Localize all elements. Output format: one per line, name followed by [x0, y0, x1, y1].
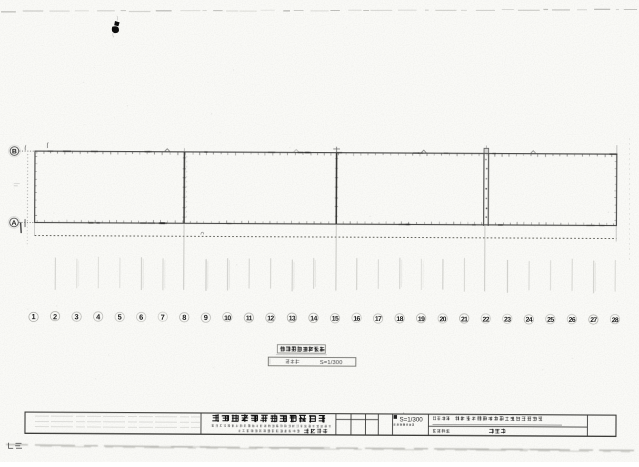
svg-text:14: 14 — [310, 316, 317, 323]
svg-text:2: 2 — [53, 312, 57, 321]
svg-text:8: 8 — [182, 313, 186, 322]
svg-text:23: 23 — [504, 317, 511, 324]
svg-text:11: 11 — [246, 315, 253, 322]
svg-text:3: 3 — [75, 312, 79, 321]
svg-text:13: 13 — [289, 315, 296, 322]
svg-text:22: 22 — [483, 316, 490, 323]
svg-text:15: 15 — [332, 316, 339, 323]
svg-text:5: 5 — [118, 313, 122, 322]
svg-text:9: 9 — [204, 313, 208, 322]
svg-text:20: 20 — [439, 316, 446, 323]
svg-text:6: 6 — [139, 313, 143, 322]
svg-text:B: B — [12, 148, 17, 155]
svg-text:28: 28 — [612, 317, 619, 324]
svg-text:27: 27 — [590, 317, 597, 324]
svg-text:25: 25 — [547, 317, 554, 324]
svg-text:17: 17 — [375, 316, 382, 323]
svg-text:S=1/300: S=1/300 — [320, 360, 343, 366]
svg-text:A: A — [12, 220, 17, 227]
svg-text:21: 21 — [461, 316, 468, 323]
svg-text:24: 24 — [526, 317, 533, 324]
svg-text:16: 16 — [353, 316, 360, 323]
svg-text:10: 10 — [224, 315, 231, 322]
svg-text:7: 7 — [161, 313, 165, 322]
svg-text:S=1/300: S=1/300 — [399, 416, 423, 423]
svg-text:12: 12 — [267, 315, 274, 322]
svg-text:18: 18 — [396, 316, 403, 323]
svg-text:1: 1 — [31, 312, 35, 321]
svg-text:26: 26 — [569, 317, 576, 324]
svg-text:19: 19 — [418, 316, 425, 323]
